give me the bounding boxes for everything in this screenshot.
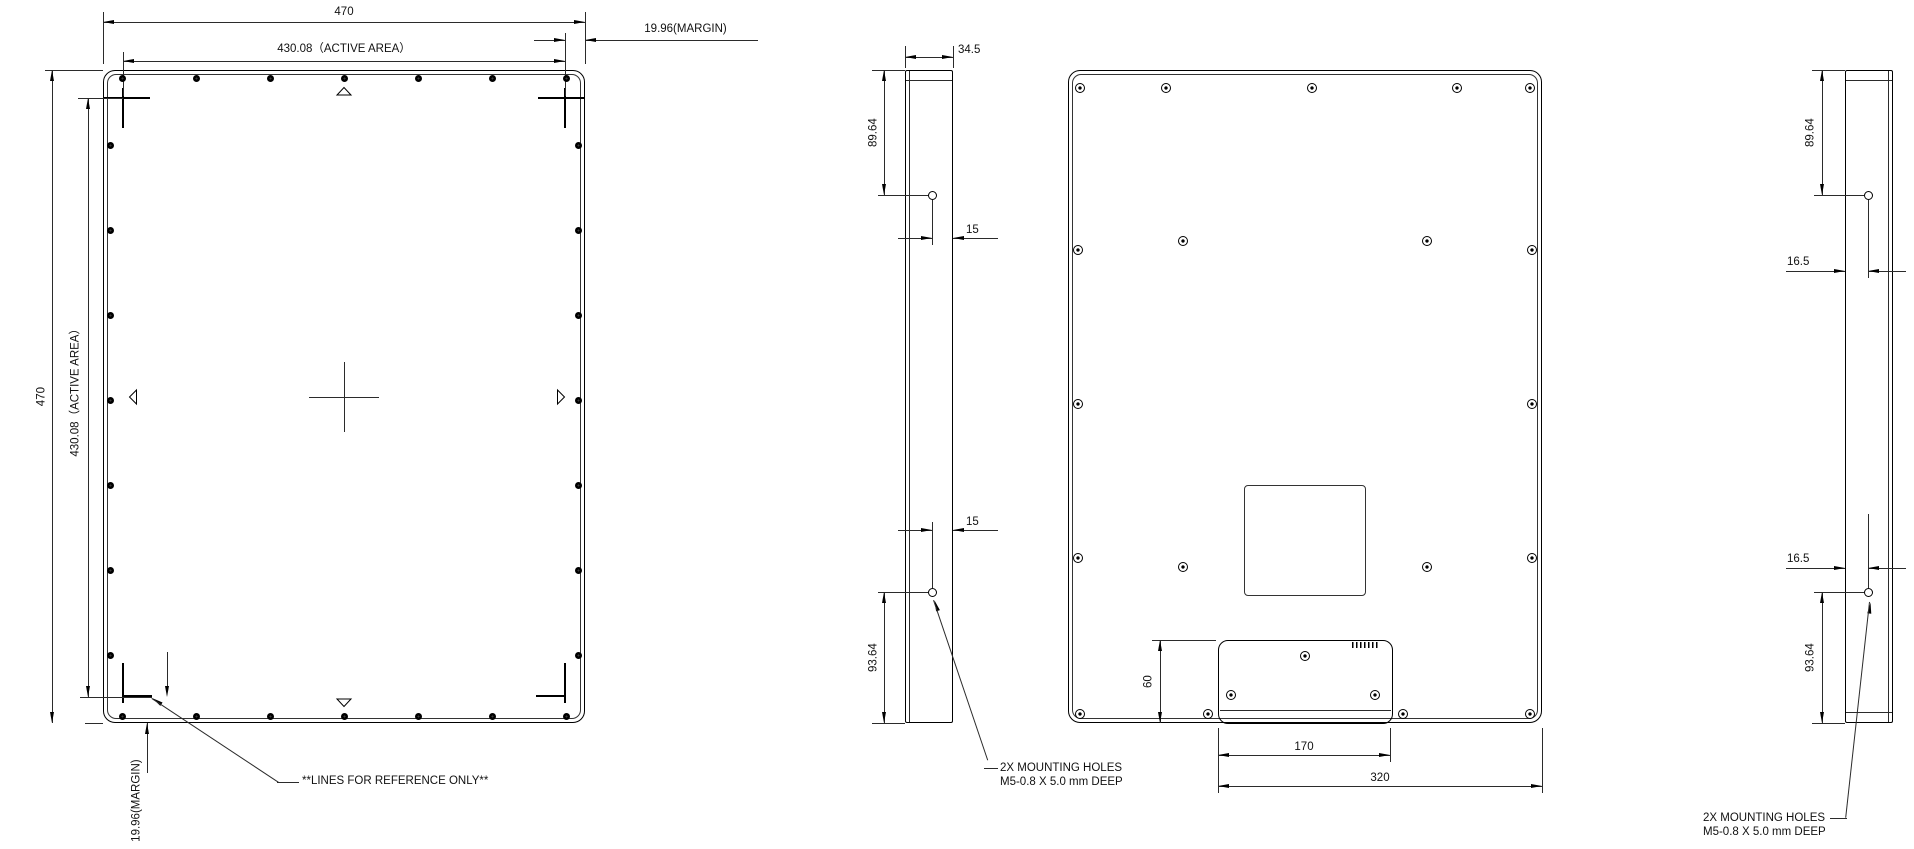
mounting-hole <box>928 191 937 200</box>
screw-icon <box>1226 690 1236 700</box>
screw-icon <box>1075 83 1085 93</box>
arrowhead-icon <box>50 70 54 81</box>
connector-port-icon <box>1352 642 1378 648</box>
screw-icon <box>267 713 274 720</box>
screw-icon <box>341 713 348 720</box>
side-view-right-lid-line <box>1846 80 1892 81</box>
arrowhead-icon <box>921 528 932 532</box>
extension-line <box>872 723 905 724</box>
screw-icon <box>1452 83 1462 93</box>
dim-front-width-label: 470 <box>284 6 404 19</box>
mounting-holes-note-line1: 2X MOUNTING HOLES <box>1000 762 1122 775</box>
dim-side-left-bottom-hole-label: 93.64 <box>867 623 880 693</box>
extension-line <box>85 723 103 724</box>
leader-line <box>1830 818 1847 819</box>
screw-icon <box>575 312 582 319</box>
dim-side-right-bottom-offset-label: 16.5 <box>1787 553 1809 566</box>
arrowhead-icon <box>1820 70 1824 81</box>
screw-icon <box>267 75 274 82</box>
screw-icon <box>489 75 496 82</box>
extension-line <box>565 33 566 96</box>
screw-icon <box>1073 399 1083 409</box>
extension-line <box>1812 70 1845 71</box>
arrowhead-icon <box>1379 753 1390 757</box>
arrowhead-icon <box>1820 184 1824 195</box>
dimension-line <box>884 592 885 723</box>
dim-back-connector-height-label: 60 <box>1142 662 1155 702</box>
screw-icon <box>193 713 200 720</box>
screw-icon <box>575 397 582 404</box>
screw-icon <box>563 75 570 82</box>
dim-side-right-top-hole-label: 89.64 <box>1804 98 1817 168</box>
arrowhead-icon <box>554 59 565 63</box>
dimension-line <box>1160 640 1161 723</box>
mounting-holes-note-line2: M5-0.8 X 5.0 mm DEEP <box>1703 826 1826 839</box>
screw-icon <box>107 227 114 234</box>
side-view-right-lid-line <box>1846 712 1892 713</box>
arrowhead-icon <box>1868 566 1879 570</box>
dimension-line <box>88 98 89 697</box>
arrowhead-icon <box>1531 784 1542 788</box>
arrowhead-icon <box>123 59 134 63</box>
arrowhead-icon <box>1820 712 1824 723</box>
dimension-line <box>1218 786 1542 787</box>
arrowhead-icon <box>953 528 964 532</box>
dimension-line <box>884 70 885 195</box>
mounting-hole <box>1864 191 1873 200</box>
screw-icon <box>1073 553 1083 563</box>
arrowhead-icon <box>554 38 565 42</box>
dim-back-connector-width-label: 170 <box>1244 741 1364 754</box>
technical-drawing-canvas: 470 430.08（ACTIVE AREA） 19.96(MARGIN) 47… <box>0 0 1914 849</box>
side-view-right-outline <box>1845 70 1893 723</box>
screw-icon <box>107 142 114 149</box>
dimension-line <box>1218 755 1390 756</box>
screw-icon <box>193 75 200 82</box>
extension-line <box>1812 723 1845 724</box>
mounting-holes-note-line1: 2X MOUNTING HOLES <box>1703 812 1825 825</box>
screw-icon <box>575 142 582 149</box>
screw-icon <box>1178 236 1188 246</box>
side-view-left-outline <box>905 70 953 723</box>
arrowhead-icon <box>953 236 964 240</box>
arrowhead-icon <box>1868 269 1879 273</box>
extension-line <box>45 70 103 71</box>
arrowhead-icon <box>1158 712 1162 723</box>
back-view-inner-outline <box>1072 74 1538 719</box>
connector-box-inner-line <box>1220 710 1391 711</box>
screw-icon <box>107 652 114 659</box>
reference-only-note: **LINES FOR REFERENCE ONLY** <box>302 775 488 788</box>
extension-line <box>1814 195 1864 196</box>
mounting-holes-note-line2: M5-0.8 X 5.0 mm DEEP <box>1000 776 1123 789</box>
arrowhead-icon <box>86 98 90 109</box>
screw-icon <box>1527 553 1537 563</box>
arrowhead-icon <box>1218 784 1229 788</box>
screw-icon <box>119 713 126 720</box>
arrowhead-icon <box>942 55 953 59</box>
arrowhead-icon <box>50 712 54 723</box>
screw-icon <box>575 227 582 234</box>
screw-icon <box>1527 399 1537 409</box>
extension-line <box>1868 514 1869 588</box>
screw-icon <box>575 652 582 659</box>
arrowhead-icon <box>921 236 932 240</box>
extension-line <box>878 195 928 196</box>
dimension-line <box>123 61 565 62</box>
mounting-hole <box>928 588 937 597</box>
arrowhead-icon <box>882 592 886 603</box>
dim-side-right-bottom-hole-label: 93.64 <box>1804 623 1817 693</box>
orientation-mark-right-icon <box>556 389 566 405</box>
screw-icon <box>1203 709 1213 719</box>
side-view-left-lid-line <box>906 80 952 81</box>
arrowhead-icon <box>882 70 886 81</box>
extension-line <box>1542 728 1543 793</box>
dim-front-height-label: 470 <box>35 352 48 442</box>
dimension-line <box>167 652 168 686</box>
label-area-rect <box>1244 485 1366 596</box>
screw-icon <box>107 312 114 319</box>
screw-icon <box>1525 709 1535 719</box>
extension-line <box>932 200 933 245</box>
arrowhead-icon <box>145 723 149 734</box>
arrowhead-icon <box>1834 566 1845 570</box>
active-area-bottom-extension-line <box>80 697 152 698</box>
dim-side-right-top-offset-label: 16.5 <box>1787 256 1809 269</box>
screw-icon <box>415 75 422 82</box>
screw-icon <box>107 482 114 489</box>
dim-front-margin-bottom-label: 19.96(MARGIN) <box>130 755 143 847</box>
screw-icon <box>1398 709 1408 719</box>
screw-icon <box>1307 83 1317 93</box>
extension-line <box>953 46 954 68</box>
arrowhead-icon <box>1820 592 1824 603</box>
screw-icon <box>1527 245 1537 255</box>
dim-side-left-bottom-offset-label: 15 <box>966 516 979 529</box>
dimension-line <box>585 40 758 41</box>
side-view-right-face-line <box>1888 71 1889 722</box>
arrowhead-icon <box>1834 269 1845 273</box>
extension-line <box>932 522 933 588</box>
dim-side-left-top-hole-label: 89.64 <box>867 98 880 168</box>
extension-line <box>878 592 928 593</box>
arrowhead-icon <box>574 20 585 24</box>
screw-icon <box>1370 690 1380 700</box>
screw-icon <box>107 567 114 574</box>
arrowhead-icon <box>103 20 114 24</box>
mounting-hole <box>1864 588 1873 597</box>
dim-front-active-height-label: 430.08（ACTIVE AREA） <box>69 337 82 457</box>
screw-icon <box>489 713 496 720</box>
arrowhead-icon <box>1158 640 1162 651</box>
center-crosshair-icon <box>309 397 379 398</box>
screw-icon <box>563 713 570 720</box>
screw-icon <box>575 482 582 489</box>
dim-side-left-top-offset-label: 15 <box>966 224 979 237</box>
extension-line <box>1152 640 1216 641</box>
extension-line <box>872 70 905 71</box>
dimension-line <box>103 22 585 23</box>
extension-line <box>1868 200 1869 278</box>
dim-front-margin-top-label: 19.96(MARGIN) <box>608 23 763 36</box>
arrowhead-icon <box>585 38 596 42</box>
arrowhead-icon <box>86 686 90 697</box>
screw-icon <box>415 713 422 720</box>
dimension-line <box>52 70 53 723</box>
screw-icon <box>107 397 114 404</box>
screw-icon <box>119 75 126 82</box>
dim-side-left-thickness-label: 34.5 <box>958 44 980 57</box>
screw-icon <box>1178 562 1188 572</box>
dim-front-active-width-label: 430.08（ACTIVE AREA） <box>214 43 474 56</box>
screw-icon <box>1422 236 1432 246</box>
leader-line <box>277 782 299 783</box>
extension-line <box>1390 728 1391 762</box>
arrowhead-icon <box>1218 753 1229 757</box>
active-area-corner-mark <box>536 695 565 697</box>
screw-icon <box>1075 709 1085 719</box>
dimension-line <box>1822 592 1823 723</box>
screw-icon <box>1300 651 1310 661</box>
arrowhead-icon <box>165 686 169 697</box>
active-area-corner-mark <box>538 97 585 99</box>
arrowhead-icon <box>882 712 886 723</box>
orientation-mark-left-icon <box>128 389 138 405</box>
dim-back-connector-span-label: 320 <box>1320 772 1440 785</box>
screw-icon <box>1073 245 1083 255</box>
leader-line <box>984 768 998 769</box>
arrowhead-icon <box>882 184 886 195</box>
orientation-mark-bottom-icon <box>336 698 352 708</box>
dimension-line <box>1822 70 1823 195</box>
screw-icon <box>1161 83 1171 93</box>
screw-icon <box>1422 562 1432 572</box>
screw-icon <box>341 75 348 82</box>
arrowhead-icon <box>905 55 916 59</box>
orientation-mark-top-icon <box>336 86 352 96</box>
screw-icon <box>575 567 582 574</box>
side-view-left-face-line <box>909 71 910 722</box>
screw-icon <box>1525 83 1535 93</box>
